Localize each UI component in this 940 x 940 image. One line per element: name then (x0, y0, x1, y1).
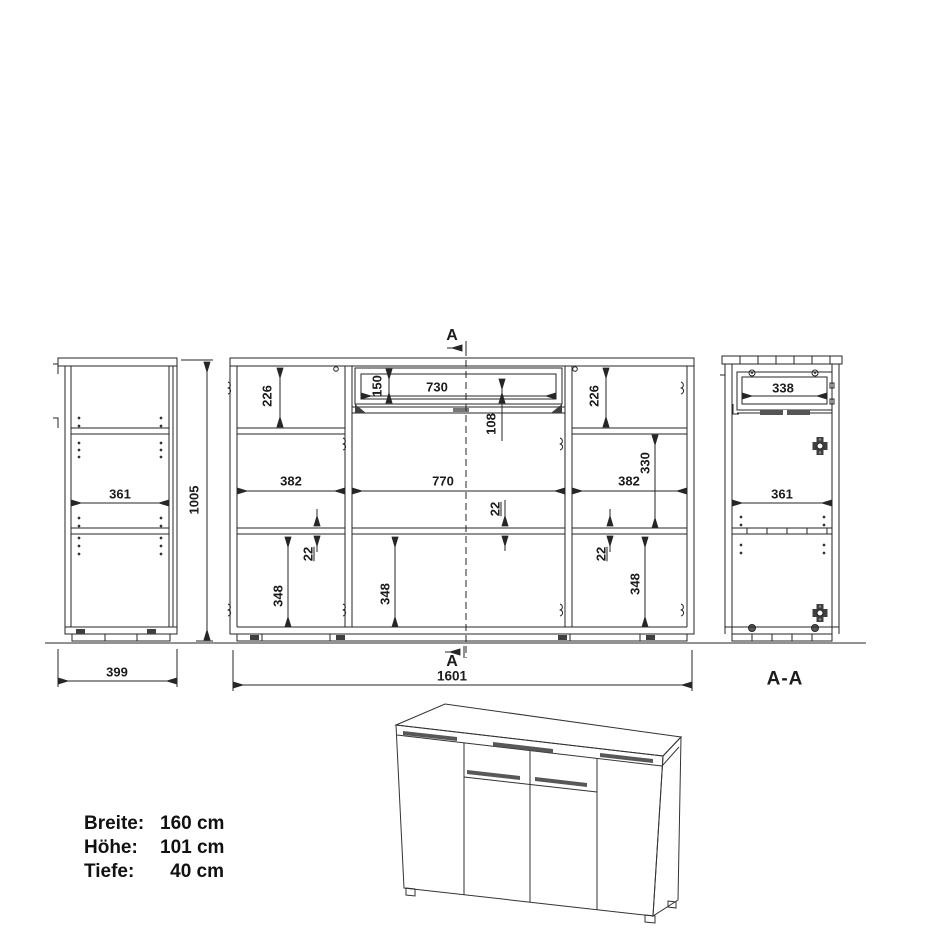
technical-drawing-page: 1005 361 399 226 150 730 108 226 382 770… (0, 0, 940, 940)
spec-row-breite: Breite: 160 cm (84, 812, 224, 836)
dim-under-drawer: 108 (485, 413, 498, 435)
spec-row-hoehe: Höhe: 101 cm (84, 836, 224, 860)
section-view-label: A-A (767, 670, 804, 689)
dim-section-inner-width: 361 (771, 488, 793, 501)
dim-section-drawer-width: 338 (772, 382, 794, 395)
dim-side-outer-width: 399 (106, 666, 128, 679)
dim-right-column-width: 382 (618, 475, 640, 488)
hinge-marks (228, 382, 684, 616)
front-view-drawing (228, 358, 694, 641)
spec-label: Höhe: (84, 836, 160, 860)
door-handles (403, 731, 653, 787)
dim-shelf-thickness-right: 22 (595, 547, 608, 561)
dim-shelf-thickness-mid: 22 (489, 502, 502, 516)
spec-row-tiefe: Tiefe: 40 cm (84, 860, 224, 884)
section-marker-bottom: A (446, 654, 458, 670)
dim-side-inner-width: 361 (109, 488, 131, 501)
spec-value: 40 cm (160, 860, 224, 884)
section-marker-top: A (446, 328, 458, 344)
spec-label: Breite: (84, 812, 160, 836)
dim-right-mid-section: 330 (639, 452, 652, 474)
dim-door-section-right: 348 (629, 573, 642, 595)
dim-drawer-inner-width: 730 (426, 381, 448, 394)
spec-label: Tiefe: (84, 860, 160, 884)
dim-top-left-section: 226 (261, 385, 274, 407)
spec-value: 101 cm (160, 836, 224, 860)
dim-drawer-front-height: 150 (371, 375, 384, 397)
dim-mid-column-width: 770 (432, 475, 454, 488)
drawing-linework (0, 0, 940, 940)
dim-left-column-width: 382 (280, 475, 302, 488)
section-cut-line (445, 341, 466, 658)
dim-door-section-left: 348 (272, 585, 285, 607)
hinge-cup-bottom (813, 604, 828, 622)
dim-overall-height: 1005 (188, 486, 201, 515)
dim-top-right-section: 226 (588, 385, 601, 407)
side-view-dimensions (58, 360, 213, 687)
dim-shelf-thickness-left: 22 (302, 547, 315, 561)
hinge-cup-top (813, 437, 828, 455)
spec-table: Breite: 160 cm Höhe: 101 cm Tiefe: 40 cm (84, 812, 224, 884)
dim-overall-width: 1601 (437, 669, 467, 683)
dim-door-section-mid: 348 (379, 583, 392, 605)
product-render-3d (396, 704, 681, 923)
spec-value: 160 cm (160, 812, 224, 836)
